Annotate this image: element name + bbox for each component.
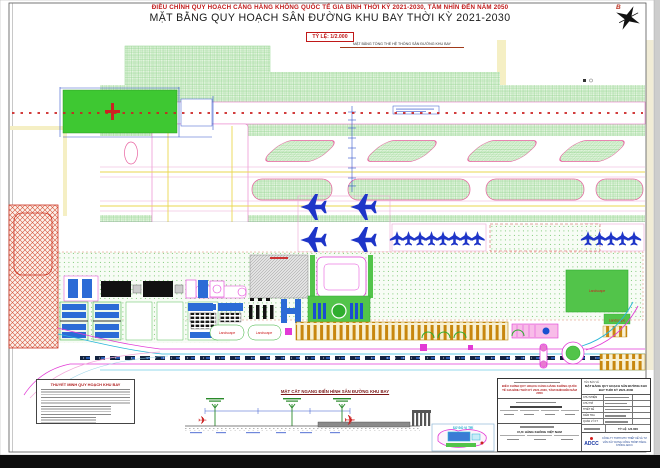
- signature-row: [500, 435, 579, 443]
- scale-badge: TỶ LỆ: 1/2.000: [306, 32, 353, 42]
- bottom-black-bar: [0, 455, 660, 468]
- project-title: ĐIỀU CHỈNH QUY HOẠCH CẢNG HÀNG KHÔNG QUỐ…: [130, 4, 530, 12]
- runway-label-box: [393, 106, 439, 114]
- cross-section-title: MẶT CẮT NGANG ĐIỂN HÌNH SÂN ĐƯỜNG KHU BA…: [248, 389, 422, 394]
- svg-text:Landscape: Landscape: [256, 331, 273, 335]
- title-block-project-name: ĐIỀU CHỈNH QUY HOẠCH CẢNG HÀNG KHÔNG QUỐ…: [500, 385, 579, 396]
- scale-row: TỶ LỆ 1/2.000: [582, 425, 650, 433]
- drawing-name-cell: TÊN BẢN VẼ MẶT BẰNG QUY HOẠCH SÂN ĐƯỜNG …: [582, 379, 650, 395]
- agency-name: CỤC HÀNG KHÔNG VIỆT NAM: [500, 430, 579, 434]
- roles-table: CHỦ NHIỆM CHỦ TRÌ THIẾT KẾ KIỂM TRA QUẢN…: [582, 395, 650, 425]
- drawing-name: MẶT BẰNG QUY HOẠCH SÂN ĐƯỜNG KHU BAY THỜ…: [584, 385, 648, 393]
- consultant-name: CÔNG TY TNHH MTV THIẾT KẾ VÀ TƯ VẤN XÂY …: [600, 437, 649, 447]
- north-label: B: [616, 4, 621, 11]
- svg-text:Landscape: Landscape: [589, 289, 606, 293]
- drawing-header: ĐIỀU CHỈNH QUY HOẠCH CẢNG HÀNG KHÔNG QUỐ…: [130, 4, 530, 43]
- title-block: ĐIỀU CHỈNH QUY HOẠCH CẢNG HÀNG KHÔNG QUỐ…: [497, 378, 651, 452]
- text-placeholder: [510, 406, 562, 408]
- airplane-icon: ✈: [198, 414, 207, 427]
- notes-panel: THUYẾT MINH QUY HOẠCH KHU BAY: [36, 379, 135, 424]
- title-block-approval-cell: [498, 399, 581, 423]
- text-placeholder: [520, 426, 554, 427]
- notes-text-lines: [41, 406, 111, 416]
- notes-text-lines: [41, 417, 96, 424]
- consultant-cell: ADCC CÔNG TY TNHH MTV THIẾT KẾ VÀ TƯ VẤN…: [582, 433, 650, 451]
- svg-text:Landscape: Landscape: [219, 331, 236, 335]
- title-block-left: ĐIỀU CHỈNH QUY HOẠCH CẢNG HÀNG KHÔNG QUỐ…: [498, 379, 582, 451]
- title-block-project-cell: ĐIỀU CHỈNH QUY HOẠCH CẢNG HÀNG KHÔNG QUỐ…: [498, 379, 581, 399]
- text-placeholder: [584, 428, 600, 429]
- scale-value: 1/2.000: [628, 427, 638, 431]
- signature-row: [500, 410, 579, 418]
- airplane-icon: ✈: [344, 413, 356, 429]
- scale-row-label: TỶ LỆ: [618, 427, 627, 431]
- restricted-zone: [9, 205, 58, 348]
- notes-text-lines: [41, 389, 130, 404]
- svg-text:Landscape: Landscape: [609, 319, 626, 323]
- text-placeholder: [516, 402, 556, 403]
- overview-sublabel: MẶT BẰNG TỔNG THỂ HỆ THỐNG SÂN ĐƯỜNG KHU…: [340, 42, 464, 48]
- adcc-logo: ADCC: [583, 437, 600, 447]
- drawing-title: MẶT BẰNG QUY HOẠCH SÂN ĐƯỜNG KHU BAY THỜ…: [130, 12, 530, 25]
- location-inset-title: SƠ ĐỒ VỊ TRÍ: [434, 426, 492, 430]
- title-block-right: TÊN BẢN VẼ MẶT BẰNG QUY HOẠCH SÂN ĐƯỜNG …: [582, 379, 650, 451]
- notes-title: THUYẾT MINH QUY HOẠCH KHU BAY: [37, 382, 134, 387]
- text-placeholder: [514, 382, 560, 383]
- title-block-agency-cell: CỤC HÀNG KHÔNG VIỆT NAM: [498, 424, 581, 451]
